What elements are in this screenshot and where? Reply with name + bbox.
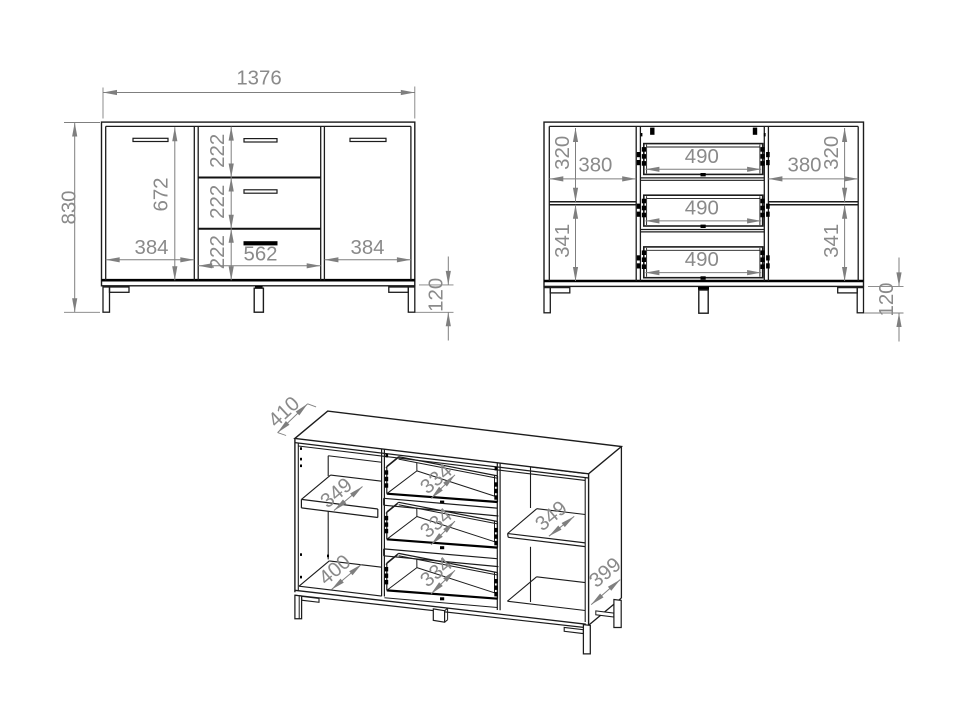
svg-text:384: 384: [350, 237, 384, 259]
svg-text:384: 384: [134, 237, 168, 259]
svg-text:120: 120: [876, 282, 898, 316]
svg-text:380: 380: [787, 155, 821, 177]
svg-text:320: 320: [821, 136, 843, 170]
svg-text:490: 490: [685, 197, 719, 219]
svg-text:1376: 1376: [236, 68, 281, 90]
svg-text:320: 320: [552, 136, 574, 170]
svg-text:222: 222: [207, 185, 229, 219]
svg-text:830: 830: [58, 190, 80, 224]
svg-text:672: 672: [151, 177, 173, 211]
svg-text:562: 562: [243, 244, 277, 266]
svg-text:341: 341: [821, 224, 843, 258]
svg-text:490: 490: [685, 146, 719, 168]
svg-text:380: 380: [578, 155, 612, 177]
svg-text:490: 490: [685, 249, 719, 271]
svg-text:120: 120: [425, 278, 447, 312]
svg-text:341: 341: [552, 224, 574, 258]
svg-text:222: 222: [207, 134, 229, 168]
